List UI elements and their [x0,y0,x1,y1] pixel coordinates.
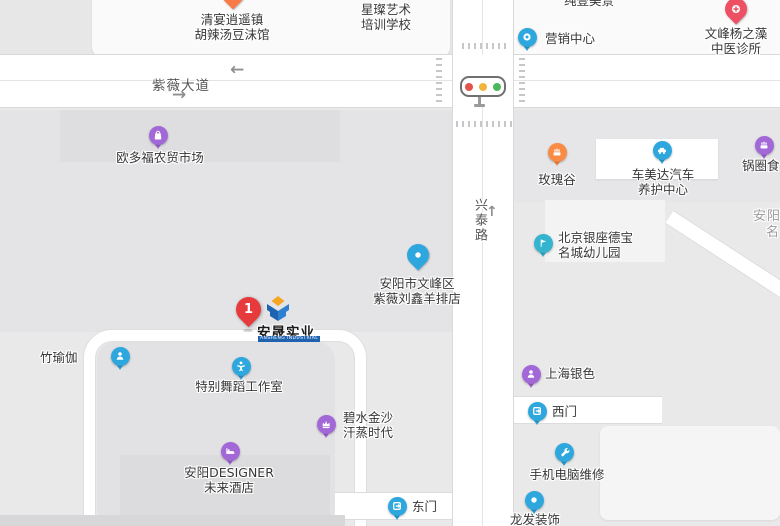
dance-icon [235,357,247,376]
shade-bottom-left [0,515,345,526]
pin-shadow [243,329,253,332]
poi-label-line: 东门 [412,499,437,514]
crosswalk-north [462,43,506,49]
anyang-designer-hotel-marker[interactable] [221,442,240,461]
yingxiao-center-label[interactable]: 营销中心 [545,31,595,46]
west-arrow: ← [230,62,244,79]
east-gate-label[interactable]: 东门 [412,499,437,514]
area-label-mingcheng: 名城 [766,221,780,240]
bed-icon [224,442,236,461]
traffic-light-icon [460,76,500,108]
ansheng-subtitle: ANSHENG INDUSTRIAL [258,336,320,342]
east-arrow: → [172,87,186,104]
poi-label-line: 中医诊所 [705,41,768,56]
person-icon [525,365,537,384]
west-gate-label[interactable]: 西门 [552,404,577,419]
poi-label-line: 上海银色 [545,366,595,381]
beijing-yinzuo-kindergarten-marker[interactable] [534,234,553,253]
poi-label-line: 玫瑰谷 [538,172,576,187]
xingcan-art-school-label[interactable]: 星璨艺术培训学校 [361,2,411,32]
building-card-bottom-right [600,426,780,520]
tebie-dance-studio-label[interactable]: 特别舞蹈工作室 [195,379,283,394]
wrench-icon [558,443,570,462]
shanghai-yinse-label[interactable]: 上海银色 [545,366,595,381]
traffic-light-yellow [479,83,487,91]
zhu-yoga-marker[interactable] [111,347,130,366]
meigui-valley-marker[interactable] [548,143,567,162]
car-icon [656,141,668,160]
guoquan-food-label[interactable]: 锅圈食 [742,158,780,173]
poi-label-line: 欧多福农贸市场 [116,150,204,165]
poi-label-line: 清宴逍遥镇 [194,12,269,27]
ring-icon [521,28,533,47]
road-ziwei-avenue [0,54,780,108]
poi-label-line: 北京银座德宝 [558,230,633,245]
poi-label-line: 锅圈食 [742,158,780,173]
beijing-yinzuo-kindergarten-label[interactable]: 北京银座德宝名城幼儿园 [558,230,633,260]
zhu-yoga-label[interactable]: 竹瑜伽 [40,350,78,365]
guoquan-food-marker[interactable] [755,136,774,155]
chemeida-auto-care-marker[interactable] [653,141,672,160]
ouduofu-market-marker[interactable] [149,126,168,145]
longfa-decoration-marker[interactable] [525,491,544,510]
poi-label-line: 文峰杨之藻 [705,26,768,41]
bishui-jinsha-spa-marker[interactable] [317,415,336,434]
door-icon [391,497,403,516]
traffic-light-green [493,83,501,91]
dot-icon [528,491,540,510]
map-canvas[interactable]: 紫薇大道兴泰路安阳名城 ←→↑ 清宴逍遥镇胡辣汤豆沫馆星璨艺术培训学校纯壹美景营… [0,0,780,526]
road-median-ziwei [0,80,780,81]
ouduofu-market-label[interactable]: 欧多福农贸市场 [116,150,204,165]
anyang-designer-hotel-label[interactable]: 安阳DESIGNER未来酒店 [184,465,274,495]
bishui-jinsha-spa-label[interactable]: 碧水金沙汗蒸时代 [343,410,393,440]
shanghai-yinse-marker[interactable] [522,365,541,384]
person-icon [114,347,126,366]
poi-label-line: 手机电脑维修 [529,467,604,482]
wenfeng-clinic-label[interactable]: 文峰杨之藻中医诊所 [705,26,768,56]
poi-label-line: 特别舞蹈工作室 [195,379,283,394]
door-icon [531,402,543,421]
result-pin-number: 1 [244,302,253,317]
yingxiao-center-marker[interactable] [518,28,537,47]
crosswalk-east [519,58,525,102]
poi-label-line: 安阳市文峰区 [373,276,461,291]
poi-label-line: 紫薇刘鑫羊排店 [373,291,461,306]
poi-label-line: 纯壹美景 [564,0,614,8]
poi-label-line: 西门 [552,404,577,419]
poi-label-line: 星璨艺术 [361,2,411,17]
crosswalk-west [436,58,442,102]
poi-label-line: 安阳DESIGNER [184,465,274,480]
phone-computer-repair-marker[interactable] [555,443,574,462]
poi-label-line: 车美达汽车 [632,167,695,182]
longfa-decoration-label[interactable]: 龙发装饰 [510,512,560,526]
poi-label-line: 营销中心 [545,31,595,46]
poi-label-line: 培训学校 [361,17,411,32]
shopping-bag-icon [152,126,164,145]
west-gate-marker[interactable] [528,402,547,421]
food-icon [551,143,563,162]
cross-icon [730,3,742,15]
poi-label-line: 龙发装饰 [510,512,560,526]
meigui-valley-label[interactable]: 玫瑰谷 [538,172,576,187]
qingyan-hulatang-shop-label[interactable]: 清宴逍遥镇胡辣汤豆沫馆 [194,12,269,42]
flag-icon [537,234,549,253]
poi-label-line: 碧水金沙 [343,410,393,425]
road-diagonal-right [665,210,780,321]
crosswalk-south [456,121,512,127]
poi-label-line: 未来酒店 [184,480,274,495]
east-gate-marker[interactable] [388,497,407,516]
chemeida-auto-care-label[interactable]: 车美达汽车养护中心 [632,167,695,197]
north-arrow: ↑ [486,205,498,219]
food-icon [758,136,770,155]
poi-label-line: 胡辣汤豆沫馆 [194,27,269,42]
poi-label-line: 名城幼儿园 [558,245,633,260]
poi-label-line: 汗蒸时代 [343,425,393,440]
tebie-dance-studio-marker[interactable] [232,357,251,376]
crown-icon [320,415,332,434]
chunyi-meijing-label[interactable]: 纯壹美景 [564,0,614,8]
poi-label-line: 竹瑜伽 [40,350,78,365]
poi-label-line: 养护中心 [632,182,695,197]
liuxin-lamb-restaurant-label[interactable]: 安阳市文峰区紫薇刘鑫羊排店 [373,276,461,306]
traffic-light-red [465,83,473,91]
dot-icon [412,249,424,261]
phone-computer-repair-label[interactable]: 手机电脑维修 [529,467,604,482]
